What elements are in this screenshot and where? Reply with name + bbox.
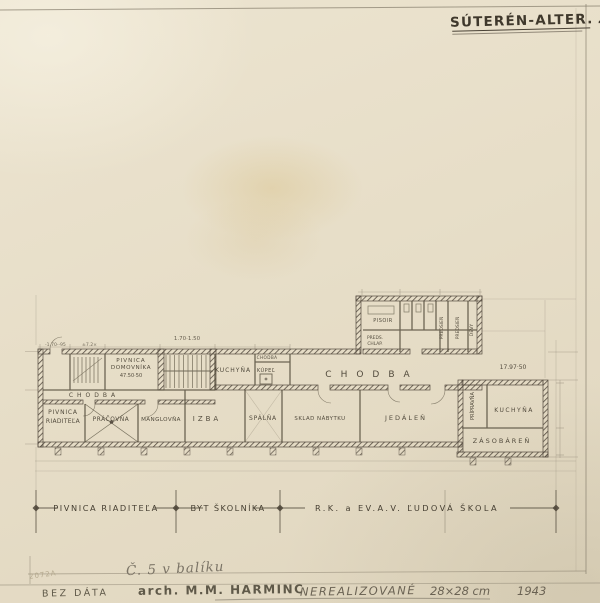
drawing-sheet: PIVNICA DOMOVNÍKA 47.50·50 KUCHYŇA CHODB… [0,0,600,603]
room-label-kuchyna-left: KUCHYŇA [215,367,251,374]
zone-label-skola: R.K. a EV.A.V. ĽUDOVÁ ŠKOLA [315,502,499,513]
room-label-kupel: KÚPEĽ [257,367,275,374]
annotation-size: 28×28 cm [430,584,490,598]
room-label-pivnica-riaditela-2: RIADITEĽA [46,418,81,425]
room-label-chodba-main: CHODBA [325,370,418,380]
room-label-preds-1: PREDS. [367,335,383,341]
room-label-devy: DEVY [469,324,475,337]
zone-label-byt-skolnika: BYT ŠKOLNÍKA [190,502,265,513]
room-label-sklad-nabytku: SKLAD NÁBYTKU [294,415,345,422]
walls-hatched [38,296,548,457]
room-label-izba: IZBA [193,415,221,423]
room-label-predsien-b: PREDSIEŇ [454,317,461,340]
room-label-spalna: SPÁLŇA [249,415,277,422]
room-label-pivnica-riaditela-1: PIVNICA [48,409,78,416]
annotation-architect: arch. M.M. HARMINC [138,582,305,598]
annotation-no-date: BEZ DÁTA [42,587,109,599]
room-label-preds-2: CHLAP. [367,341,382,347]
floor-plan-drawing: PIVNICA DOMOVNÍKA 47.50·50 KUCHYŇA CHODB… [0,0,600,603]
room-label-manglovna: MANGLOVŇA [141,416,181,423]
title-block: SÚTERÉN-ALTER. 2a. [450,8,594,32]
room-label-pripravna: PRÍPRAVŇA [469,391,476,420]
annotation-year: 1943 [517,584,546,598]
zone-labels: PIVNICA RIADITEĽA BYT ŠKOLNÍKA R.K. a EV… [53,502,499,513]
room-label-pivnica-domovnika-2: DOMOVNÍKA [111,364,151,371]
room-label-jedalen: JEDÁLEŇ [384,413,427,422]
dim-entry-b: ±7.2× [82,342,97,348]
dim-right: 17.97·50 [500,364,527,371]
dim-stair: 1.70·1.50 [174,336,201,342]
zone-label-pivnica-riaditela: PIVNICA RIADITEĽA [53,503,159,513]
room-label-chodba-left: CHODBA [69,392,119,399]
room-label-pivnica-domovnika-1: PIVNICA [116,358,145,364]
room-label-predsien-a: PREDSIEŇ [438,317,445,340]
dim-entry-a: -1.70·-95 [45,342,66,348]
footing-blocks [55,448,511,465]
dim-domovnika: 47.50·50 [120,373,142,379]
room-label-pisoir: PISOIR [373,318,393,324]
room-label-prachovna: PRÁČOVŇA [93,416,130,423]
annotation-status: NEREALIZOVANÉ [300,583,416,599]
room-label-chodba-tiny: CHODBA [257,355,278,360]
room-label-kuchyna-right: KUCHYŇA [494,407,534,414]
room-label-zasobaren: ZÁSOBÁREŇ [473,436,532,445]
